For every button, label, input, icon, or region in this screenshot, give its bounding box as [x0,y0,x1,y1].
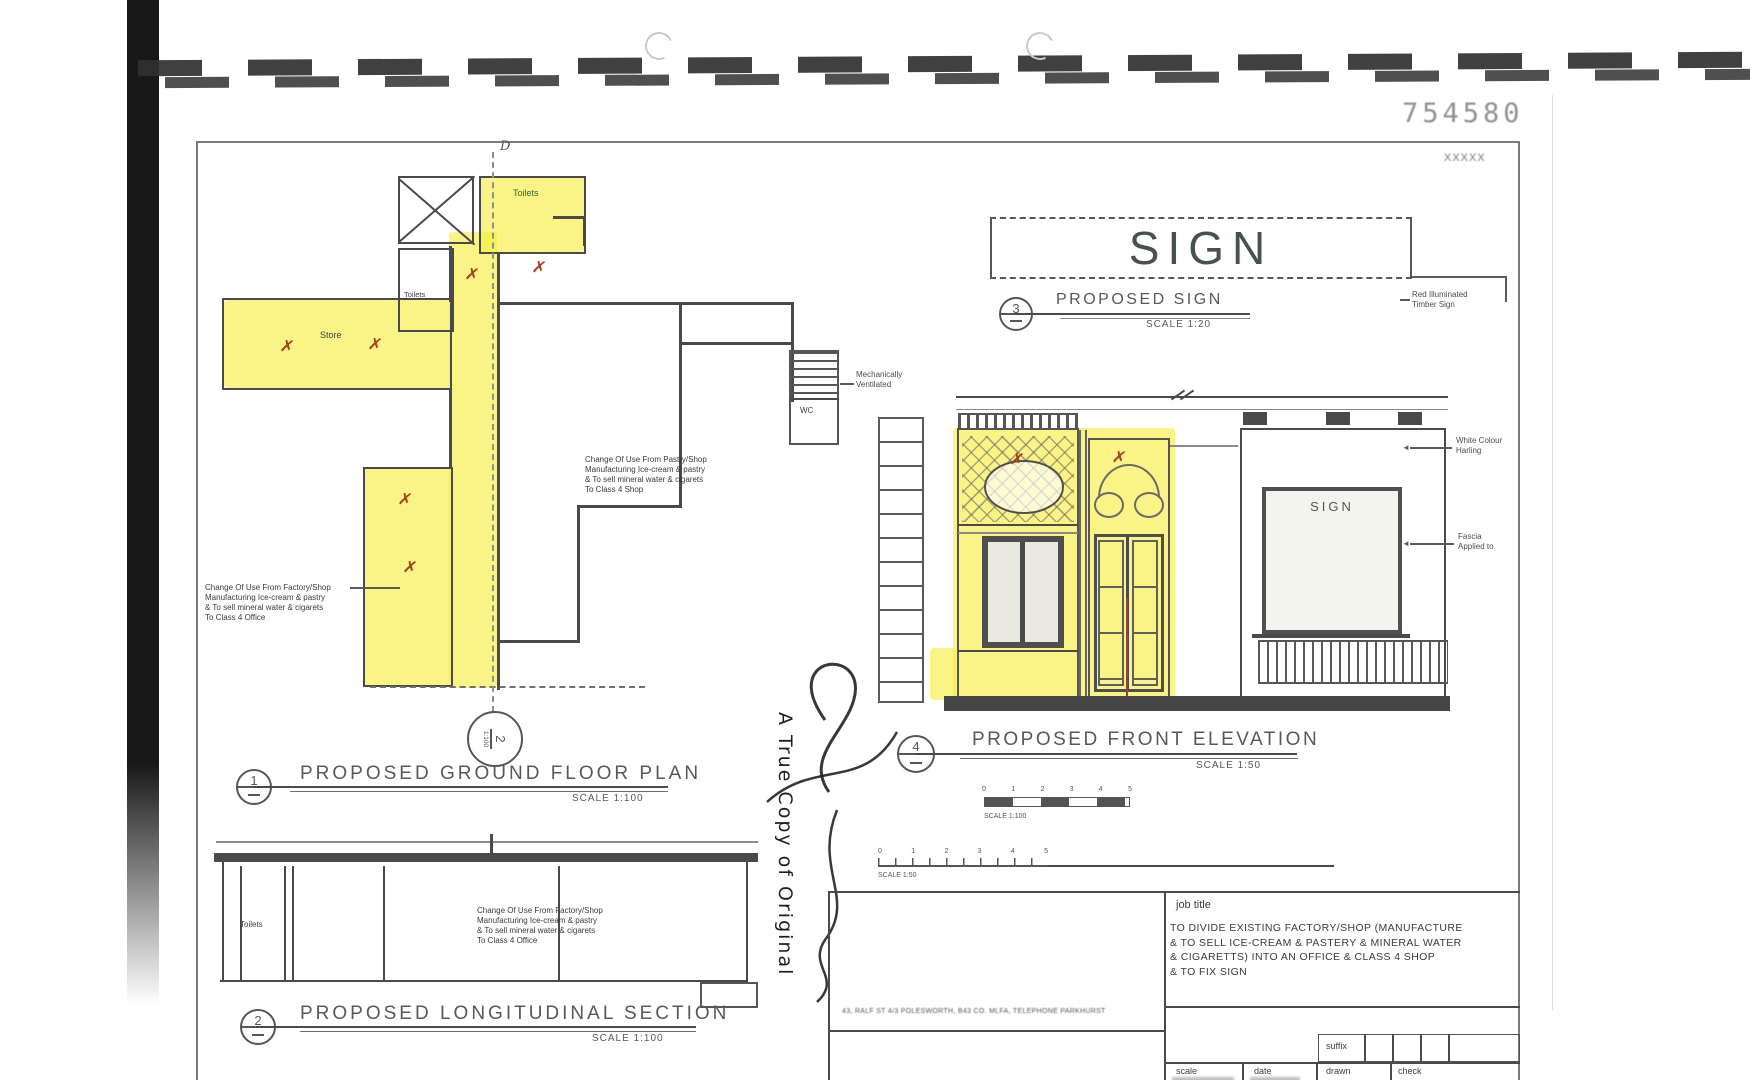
elev-fascia-line [958,524,1078,526]
elev-parapet-vent [1398,412,1422,425]
sign-leader-drop [1505,276,1507,302]
scale-front-elevation: SCALE 1:50 [1196,760,1261,771]
note-office-line: To Class 4 Office [205,613,331,623]
highlight-corridor [449,232,497,688]
scale-tick: 4 [1099,786,1103,793]
scale-tick: 1 [911,848,915,855]
bottomrow-divider [1390,1062,1392,1080]
elev-right-bldg-left [1240,429,1242,699]
signature [755,640,905,1020]
section-bubble-ref: 1:100 [482,731,489,747]
scale-tick: 3 [1070,786,1074,793]
scale-bar1 [984,797,1130,807]
elev-red-line [1126,598,1128,698]
elev-window-sign-text: SIGN [1264,499,1400,514]
title-ground-floor-plan: PROPOSED GROUND FLOOR PLAN [300,763,701,785]
note-office: Change Of Use From Factory/Shop Manufact… [205,583,331,623]
note-office-line: Manufacturing Ice-cream & pastry [205,593,331,603]
elev-cornice-line-2 [956,409,1448,410]
job-title-line: & TO FIX SIGN [1170,965,1463,980]
plan-label-store: Store [320,330,342,340]
suffix-divider [1392,1034,1394,1062]
titleblock-left-line [828,891,830,1080]
plan-inner-wall [553,216,586,219]
plan-right-room-top [497,302,794,305]
title-line-plan-2 [290,791,668,792]
plan-right-room-bottom [497,640,580,643]
note-shop-line: To Class 4 Shop [585,485,707,495]
stamp-code: XXXXX [1444,152,1486,164]
red-sign-callout-line1: Red Illuminated [1412,290,1468,300]
highlight-elevation-spill [930,648,956,700]
note-shop-line: Change Of Use From Pastry/Shop [585,455,707,465]
elev-arch-scroll [1134,492,1164,518]
note-office-line: Change Of Use From Factory/Shop [205,583,331,593]
paper-edge-line [1552,95,1553,1010]
section-roof-band [214,853,758,862]
titleblock-hline [1164,1006,1520,1008]
arrowhead-icon: ◄ [1402,443,1410,452]
title-proposed-sign: PROPOSED SIGN [1056,291,1223,309]
title-line-section [256,1026,696,1028]
note-shop: Change Of Use From Pastry/Shop Manufactu… [585,455,707,495]
scan-left-band [127,0,159,1005]
section-letter-d: D [500,139,510,154]
scale-proposed-sign: SCALE 1:20 [1146,319,1211,330]
suffix-strip [1318,1034,1520,1062]
address-text: 43, RALF ST 4/3 POLESWORTH, B43 CO. MLFA… [842,1008,1106,1015]
plan-corridor-wall [497,252,500,690]
suffix-divider [1364,1034,1366,1062]
plan-right-room-step-v [577,505,580,643]
fascia-line2: Applied to [1458,542,1494,552]
elev-slat-fence [1258,640,1448,684]
arrowhead-icon: ◄ [1402,539,1410,548]
scale-longitudinal-section: SCALE 1:100 [592,1033,664,1044]
fascia-leader [1410,543,1454,545]
section-cut-line [492,152,494,712]
section-wall [746,862,748,982]
section-bubble-inner: 2 1:100 [469,713,521,765]
elev-door-leaf [1132,540,1158,686]
fascia-line1: Fascia [1458,532,1494,542]
plan-stair-divider [789,398,839,400]
col-scale-label: scale [1176,1066,1197,1076]
title-line-elevation [915,753,1297,755]
job-title-label: job title [1176,899,1211,911]
mech-vent-line2: Ventilated [856,380,902,390]
titleblock-hline [1164,1062,1520,1064]
col-check-label: check [1398,1066,1422,1076]
suffix-divider [1420,1034,1422,1062]
plan-right-room-step-h [577,505,682,508]
scale-bar2-extension [1048,865,1334,867]
scanned-drawing-sheet: { "stamp": { "number": "754580", "code":… [0,0,1755,1080]
elev-door-leaf [1098,540,1124,686]
scale-tick: 1 [1011,786,1015,793]
scale-tick: 5 [1044,848,1048,855]
harling-callout: White Colour Harling [1456,436,1502,456]
job-title-line: & TO SELL ICE-CREAM & PASTERY & MINERAL … [1170,936,1463,951]
elev-oval-sign [984,460,1064,514]
section-wall [222,862,224,982]
scale-tick: 2 [1040,786,1044,793]
elev-pilaster-line [1079,430,1081,698]
section-floor-line [220,980,748,982]
elev-parapet-vent [1326,412,1350,425]
scale-ground-floor-plan: SCALE 1:100 [572,793,644,804]
section-chimney [490,834,493,856]
plan-extension-bottom [682,342,794,345]
fascia-callout: Fascia Applied to [1458,532,1494,552]
elev-stallriser-line [958,650,1078,652]
elev-right-bldg-top [1240,428,1446,430]
suffix-label: suffix [1326,1041,1347,1051]
plan-corridor-wall [449,246,452,302]
section-roof-thin-line [216,841,758,843]
section-wall [292,866,294,982]
elev-ground-band [944,696,1450,711]
plan-dashed-wall [370,686,645,688]
sign-panel: SIGN [990,217,1412,279]
title-front-elevation: PROPOSED FRONT ELEVATION [972,729,1319,751]
sign-panel-text: SIGN [1129,221,1273,275]
section-bubble-number: 2 [493,735,508,742]
elev-window-mullion [1020,542,1025,642]
scale-tick: 5 [1128,786,1132,793]
suffix-divider [1448,1034,1450,1062]
elev-window-sill [1252,634,1410,638]
titleblock-divider [1164,891,1166,1080]
scale-bar1-caption: SCALE 1:100 [984,813,1026,820]
plan-stair-hatch [791,352,837,398]
red-sign-callout: Red Illuminated Timber Sign [1412,290,1468,310]
bottomrow-divider [1316,1062,1318,1080]
job-title-line: & CIGARETTS) INTO AN OFFICE & CLASS 4 SH… [1170,950,1463,965]
note-office-line: & To sell mineral water & cigarets [205,603,331,613]
scale-tick: 2 [944,848,948,855]
section-label-toilets: Toilets [240,920,263,929]
titleblock-hline [828,1030,1166,1032]
plan-label-wc: WC [800,406,813,415]
note-shop-line: Manufacturing Ice-cream & pastry [585,465,707,475]
title-line-elevation-2 [960,758,1298,759]
mech-vent-line1: Mechanically [856,370,902,380]
plan-label-toilets-small: Toilets [404,290,425,299]
section-wall [383,866,385,982]
plan-label-toilets-main: Toilets [513,188,539,198]
scale-tick: 0 [982,786,986,793]
note-office-leader [350,587,400,589]
scale-tick: 3 [978,848,982,855]
note-section: Change Of Use From Factory/Shop Manufact… [477,906,603,946]
elev-pilaster-line [1085,430,1087,698]
job-title-text: TO DIVIDE EXISTING FACTORY/SHOP (MANUFAC… [1170,921,1463,979]
sign-leader-tick [1400,299,1410,301]
harling-line1: White Colour [1456,436,1502,446]
note-section-line: Manufacturing Ice-cream & pastry [477,916,603,926]
col-date-label: date [1254,1066,1272,1076]
col-drawn-label: drawn [1326,1066,1351,1076]
scale-bar1-numbers: 0 1 2 3 4 5 [982,786,1132,793]
title-line-plan [252,786,668,788]
elev-cornice-line [956,396,1448,398]
plan-store-room [222,298,452,390]
elev-link-top-line [1170,445,1238,447]
note-section-line: Change Of Use From Factory/Shop [477,906,603,916]
note-section-line: To Class 4 Office [477,936,603,946]
bottomrow-divider [1242,1062,1244,1080]
elev-parapet-vent [1243,412,1267,425]
title-longitudinal-section: PROPOSED LONGITUDINAL SECTION [300,1003,729,1025]
mech-vent-leader [840,383,854,385]
title-line-section-2 [300,1031,696,1032]
harling-line2: Harling [1456,446,1502,456]
harling-leader [1410,447,1452,449]
sign-leader-line [1412,276,1506,278]
stamp-number: 754580 [1402,98,1524,129]
scale-tick: 4 [1011,848,1015,855]
plan-corridor-wall [449,388,452,468]
section-cut-bubble: 2 1:100 [467,711,523,767]
mech-vent-callout: Mechanically Ventilated [856,370,902,390]
elev-fascia-line-2 [958,532,1078,534]
plan-inner-wall [583,216,586,246]
note-section-line: & To sell mineral water & cigarets [477,926,603,936]
titleblock-top-line [828,891,1520,893]
note-shop-line: & To sell mineral water & cigarets [585,475,707,485]
section-wall [284,866,286,982]
red-sign-callout-line2: Timber Sign [1412,300,1468,310]
job-title-line: TO DIVIDE EXISTING FACTORY/SHOP (MANUFAC… [1170,921,1463,936]
elev-arch-scroll [1094,492,1124,518]
title-line-sign [1014,313,1250,315]
